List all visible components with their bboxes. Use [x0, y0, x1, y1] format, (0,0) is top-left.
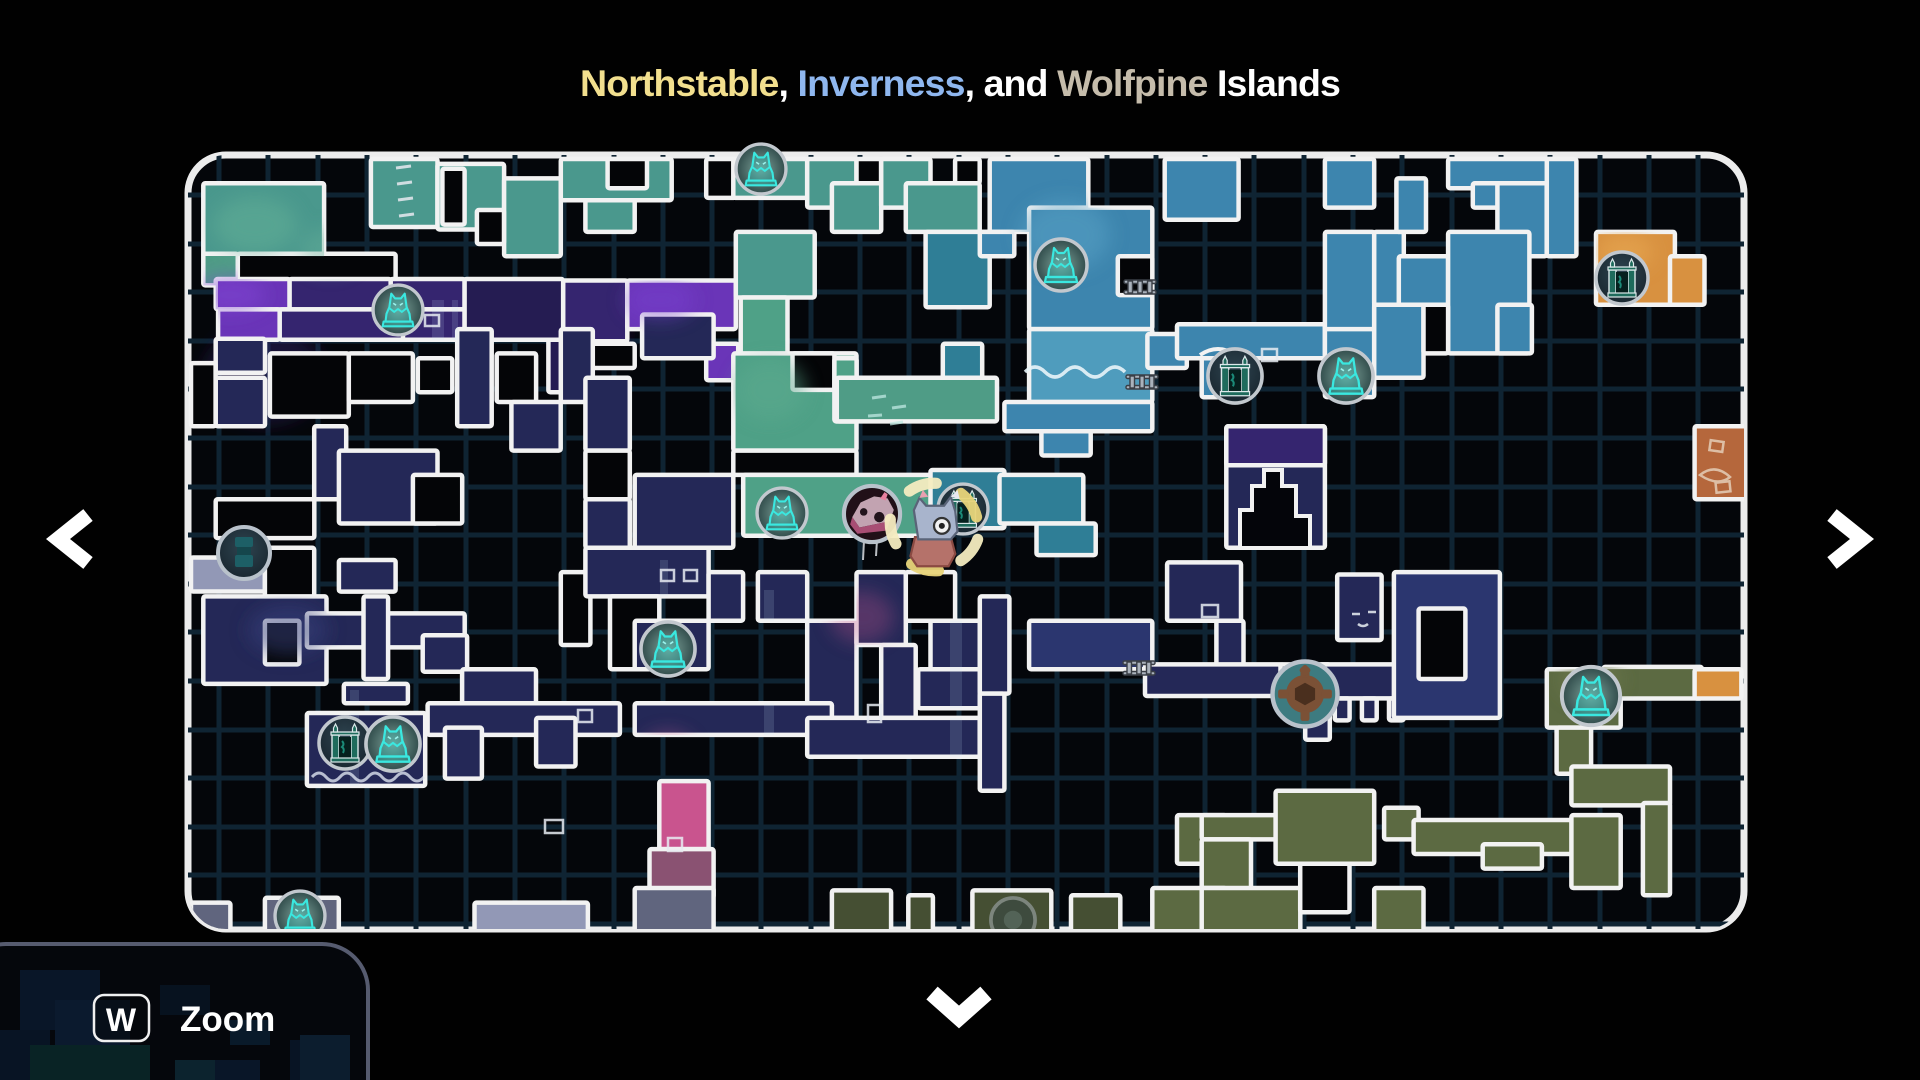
svg-text:W: W: [106, 1002, 137, 1038]
svg-text:Zoom: Zoom: [180, 1000, 275, 1039]
svg-text:Northstable, Inverness, and Wo: Northstable, Inverness, and Wolfpine Isl…: [580, 62, 1340, 104]
